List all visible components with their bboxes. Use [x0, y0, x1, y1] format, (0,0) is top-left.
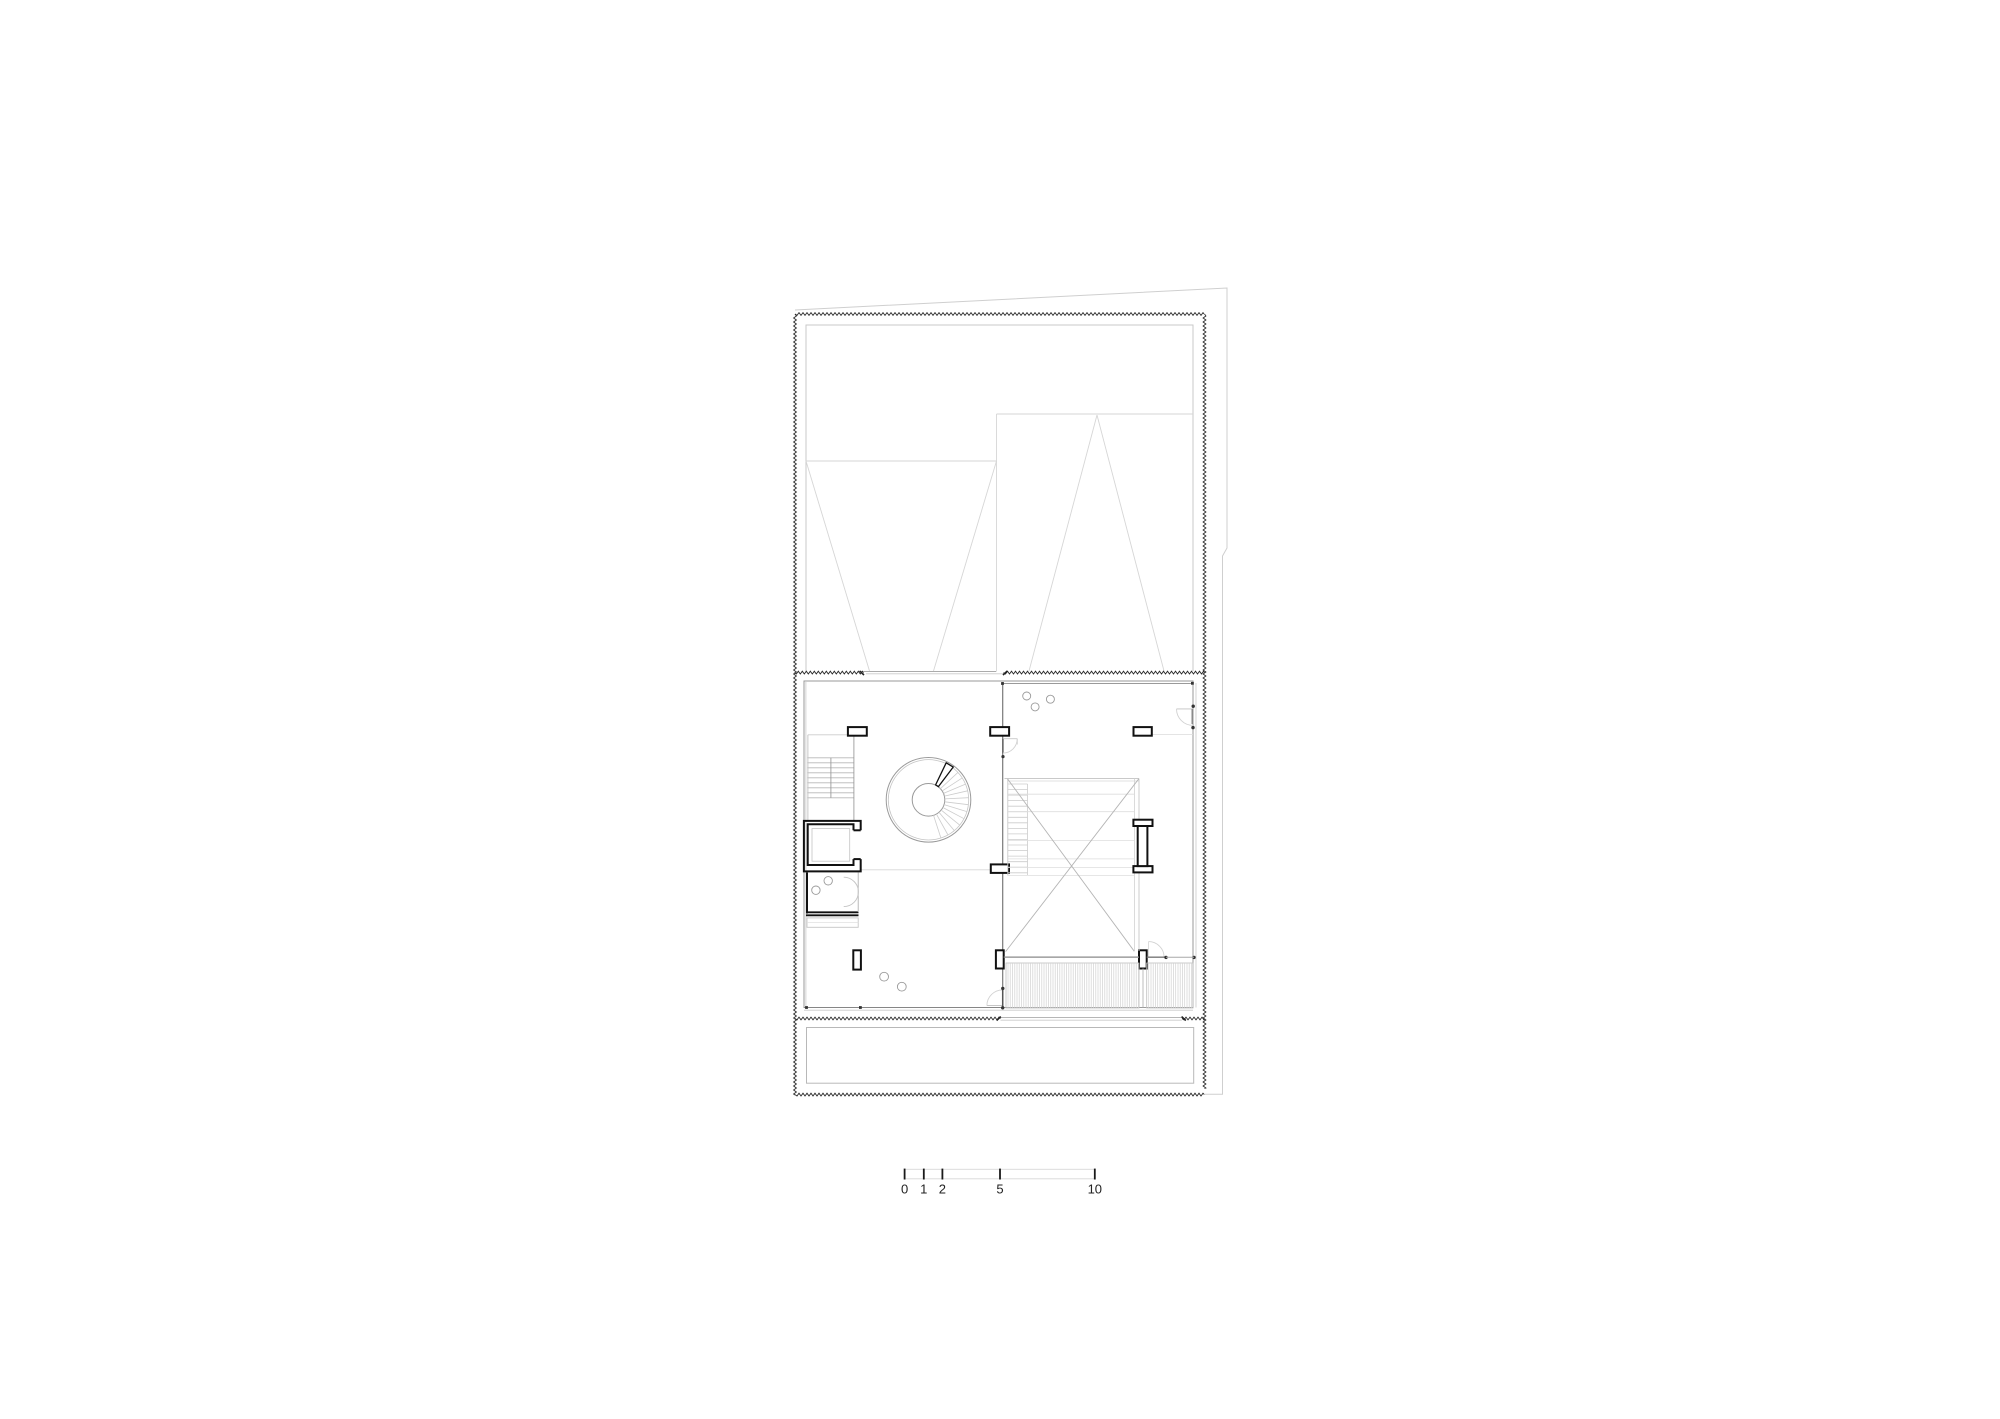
svg-text:0: 0 [901, 1182, 908, 1197]
svg-text:1: 1 [920, 1182, 927, 1197]
svg-text:10: 10 [1088, 1182, 1102, 1197]
svg-text:5: 5 [996, 1182, 1003, 1197]
svg-text:2: 2 [939, 1182, 946, 1197]
